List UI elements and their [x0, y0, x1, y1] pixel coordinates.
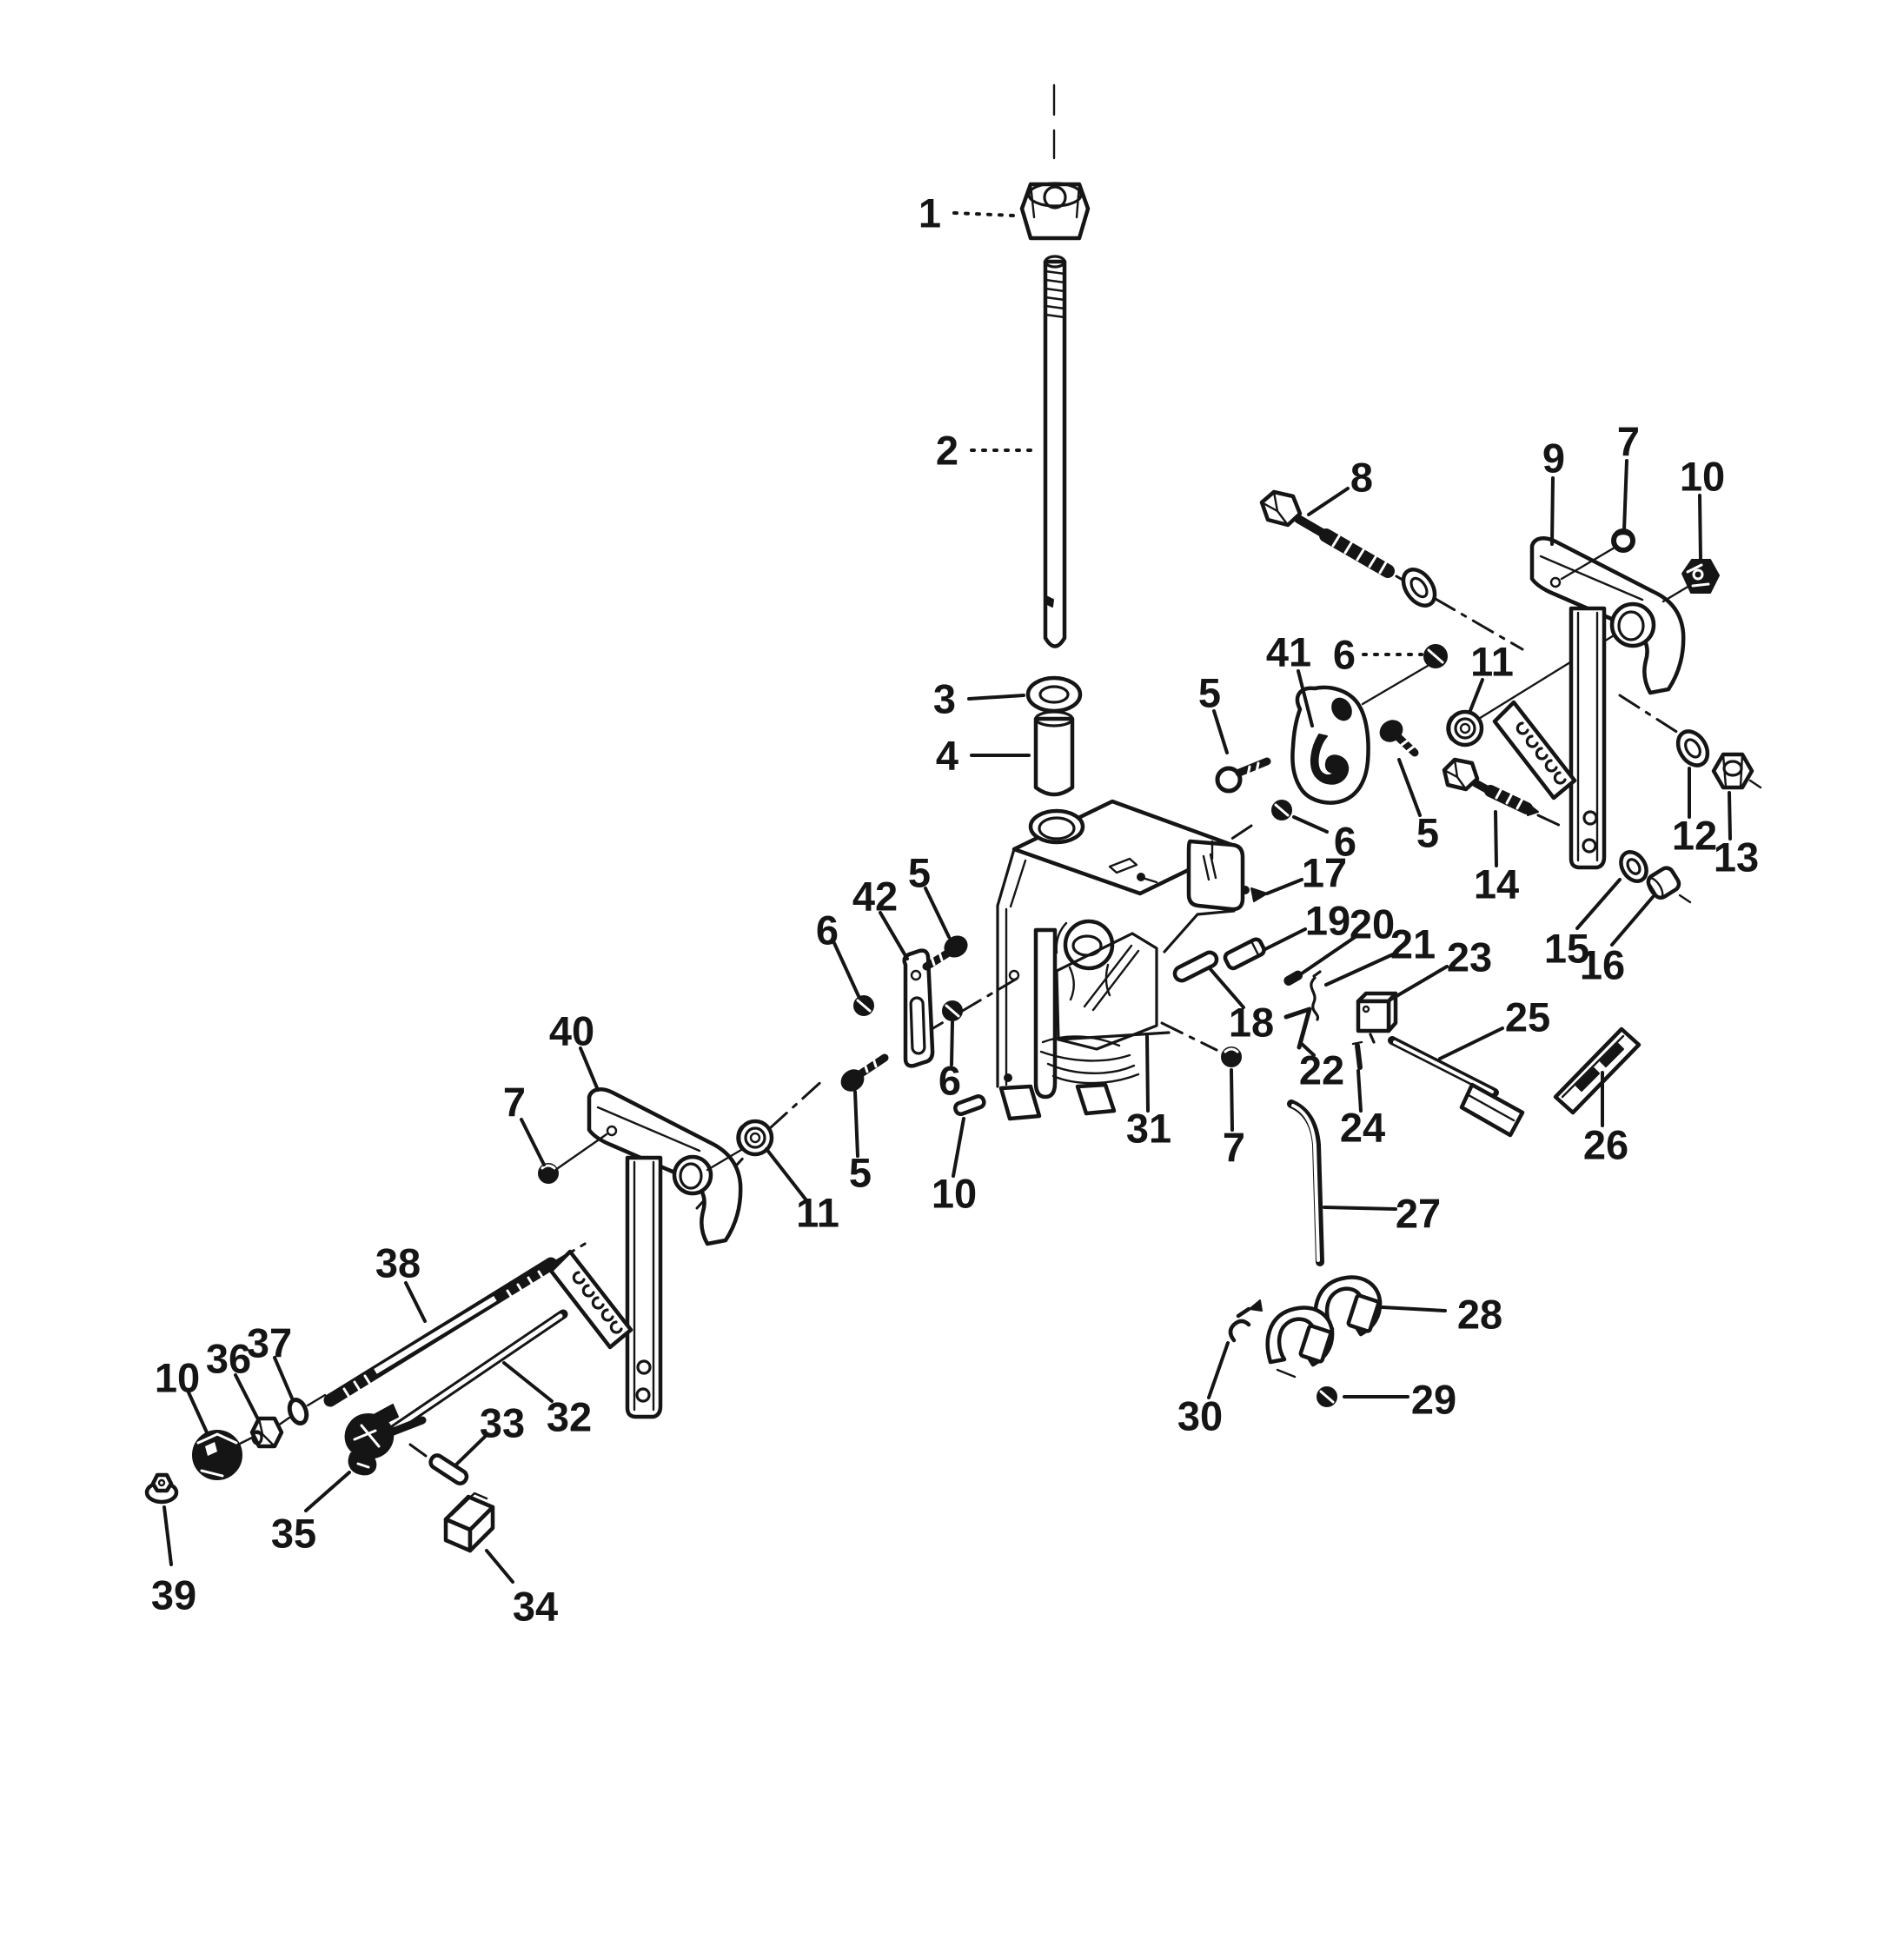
callout-label-1-0: 1 [919, 190, 941, 236]
callout-leader-28-33 [1383, 1307, 1445, 1311]
part-block-23 [1358, 993, 1396, 1042]
callout-leader-7-37 [521, 1120, 544, 1165]
part-nut-7a [1614, 531, 1633, 550]
part-link-19 [1224, 938, 1266, 970]
callout-label-13-13: 13 [1714, 834, 1759, 880]
part-oring-37 [287, 1398, 309, 1425]
drawing-stroke [1292, 688, 1368, 803]
callout-leader-1-0 [954, 213, 1013, 216]
callout-leader-21-22 [1326, 954, 1393, 985]
callout-label-31-29: 31 [1126, 1106, 1171, 1152]
drawing-stroke [1277, 1370, 1295, 1377]
callout-leader-15-17 [1577, 880, 1620, 928]
drawing-stroke [308, 1395, 325, 1405]
part-pin-22 [1286, 1009, 1310, 1047]
callout-leader-16-18 [1612, 897, 1653, 945]
part-washer-12 [1672, 726, 1714, 771]
drawing-stroke [153, 1475, 171, 1491]
callout-label-28-33: 28 [1457, 1292, 1502, 1338]
callout-leader-9-8 [1552, 478, 1553, 544]
drawing-stroke [1172, 950, 1219, 983]
part-clamp-screw-38 [330, 1264, 551, 1403]
callout-leader-19-20 [1265, 929, 1305, 949]
callout-label-21-22: 21 [1390, 921, 1436, 967]
drawing-stroke [923, 979, 1017, 1034]
callout-leader-11-11 [1469, 680, 1482, 713]
drawing-stroke [1714, 754, 1752, 787]
drawing-stroke [1357, 1046, 1360, 1067]
callout-label-2-1: 2 [936, 428, 958, 474]
part-anode-plate-26 [1555, 1029, 1639, 1113]
exploded-parts-diagram: 1234541679108111213145615161719202123251… [0, 0, 1877, 1960]
callout-label-20-21: 20 [1350, 901, 1395, 947]
drawing-stroke [1230, 826, 1251, 840]
callout-label-7-37: 7 [503, 1080, 526, 1126]
callout-leader-14-14 [1496, 812, 1496, 866]
drawing-stroke [1250, 1300, 1262, 1311]
part-nut-6d [1272, 801, 1291, 820]
drawing-stroke [558, 1134, 607, 1168]
part-clamp-bracket-28 [1268, 1278, 1380, 1377]
part-pivot-bolt-2 [1045, 256, 1065, 647]
callout-label-18-25: 18 [1229, 1000, 1274, 1046]
callout-label-42-39: 42 [852, 874, 898, 920]
part-bolt-5a [1217, 761, 1267, 791]
callout-leader-31-29 [1147, 1036, 1148, 1111]
drawing-stroke [1528, 805, 1538, 815]
callout-label-22-26: 22 [1299, 1047, 1344, 1093]
callout-leader-7-30 [1231, 1070, 1232, 1130]
part-bolt-14 [1444, 760, 1538, 815]
part-slide-block-34 [446, 1493, 493, 1551]
part-nut-7b [539, 1164, 558, 1183]
drawing-stroke [1680, 895, 1690, 902]
part-bolt-5c [838, 1058, 885, 1094]
drawing-stroke [377, 1302, 497, 1375]
drawing-stroke [770, 1078, 826, 1128]
drawing-stroke [1646, 866, 1681, 900]
part-clamp-bracket-40 [551, 1089, 746, 1417]
callout-label-5-4: 5 [1198, 670, 1221, 716]
callout-label-37-45: 37 [247, 1320, 292, 1366]
part-nut-13 [1714, 754, 1761, 787]
drawing-stroke [1045, 262, 1065, 647]
drawing-stroke [1672, 726, 1714, 771]
callout-label-30-34: 30 [1177, 1393, 1223, 1439]
part-nut-6a [1424, 645, 1447, 668]
part-bolt-5d [1376, 717, 1415, 753]
drawing-stroke [1353, 1042, 1362, 1044]
part-locknut-1 [1022, 183, 1088, 238]
callout-leader-39-51 [164, 1507, 171, 1565]
callout-label-10-9: 10 [1680, 454, 1725, 500]
callout-label-26-28: 26 [1583, 1122, 1628, 1168]
callout-leader-30-34 [1209, 1343, 1228, 1398]
drawing-stroke [395, 1316, 560, 1428]
drawing-stroke [1005, 1074, 1011, 1081]
part-spacer-4 [1036, 712, 1072, 794]
drawing-stroke [1242, 887, 1249, 894]
callout-label-5-43: 5 [849, 1150, 872, 1196]
part-clamp-bracket-9 [1495, 538, 1689, 867]
part-flange-nut-39 [147, 1475, 176, 1502]
callout-leader-3-2 [969, 695, 1024, 699]
callout-leader-34-52 [487, 1551, 513, 1582]
drawing-stroke [1230, 1309, 1249, 1340]
callout-label-39-51: 39 [151, 1572, 196, 1618]
callout-label-9-8: 9 [1542, 435, 1565, 482]
mount-foot [1001, 1086, 1039, 1119]
drawing-stroke [375, 1299, 495, 1372]
drawing-stroke [193, 1431, 242, 1479]
drawing-stroke [1011, 860, 1025, 907]
drawing-stroke [1028, 678, 1080, 711]
drawing-stroke [1644, 866, 1681, 901]
callout-label-19-20: 19 [1305, 898, 1350, 944]
drawing-stroke [1397, 564, 1442, 612]
drawing-stroke [1358, 1001, 1389, 1031]
callout-leader-10-31 [953, 1119, 964, 1176]
callout-leader-42-39 [880, 913, 907, 959]
callout-label-6-6: 6 [1333, 632, 1356, 678]
callout-leader-17-19 [1267, 880, 1302, 894]
callout-label-27-32: 27 [1396, 1191, 1441, 1237]
drawing-stroke [1251, 888, 1267, 901]
callout-leader-23-23 [1392, 967, 1447, 999]
drawing-stroke [1363, 666, 1428, 704]
callout-leader-10-9 [1700, 495, 1701, 560]
part-washer-8 [1397, 564, 1442, 612]
drawing-stroke [410, 1445, 426, 1456]
callout-label-11-38: 11 [796, 1190, 839, 1236]
callout-leader-7-7 [1624, 461, 1627, 530]
part-cap-nut-10c [193, 1431, 242, 1479]
part-screw-17 [1242, 887, 1267, 901]
callout-label-5-40: 5 [908, 850, 931, 896]
part-pin-33 [410, 1445, 469, 1485]
transom-plate [627, 1158, 660, 1417]
drawing-stroke [278, 1418, 289, 1425]
callout-label-11-11: 11 [1470, 639, 1514, 685]
callout-leader-25-24 [1440, 1028, 1502, 1059]
callout-label-23-23: 23 [1447, 934, 1492, 980]
callout-label-16-18: 16 [1580, 942, 1625, 988]
callout-leader-36-46 [235, 1375, 258, 1419]
drawing-stroke [1370, 1034, 1374, 1042]
callout-label-5-15: 5 [1416, 810, 1439, 856]
part-washer-3 [1028, 678, 1080, 711]
mount-foot [1078, 1085, 1114, 1113]
drawing-stroke [1036, 719, 1072, 794]
callout-label-34-52: 34 [513, 1584, 558, 1630]
callout-leader-6-16 [1294, 817, 1327, 832]
diagram-page: 1234541679108111213145615161719202123251… [0, 0, 1877, 1960]
drawing-stroke [1239, 761, 1267, 773]
callout-label-38-44: 38 [375, 1240, 421, 1286]
part-pin-24 [1353, 1042, 1362, 1067]
callout-label-12-12: 12 [1672, 813, 1717, 859]
callout-leader-40-36 [580, 1048, 598, 1090]
callout-label-25-24: 25 [1505, 994, 1550, 1040]
drawing-stroke [1395, 1042, 1492, 1092]
part-reverse-lock-rod-27 [1291, 1104, 1320, 1262]
transom-plate [1571, 608, 1604, 867]
callout-label-6-41: 6 [816, 907, 839, 953]
part-nut-29 [1317, 1387, 1336, 1406]
drawing-stroke [349, 1452, 376, 1474]
drawing-stroke [1300, 1325, 1331, 1362]
callout-label-7-30: 7 [1223, 1125, 1245, 1171]
callout-leader-27-32 [1324, 1207, 1396, 1209]
drawing-stroke [1348, 1295, 1379, 1332]
callout-label-6-42: 6 [938, 1058, 961, 1104]
front-channel-bar [1036, 930, 1055, 1097]
callout-label-41-5: 41 [1266, 629, 1311, 675]
callout-label-7-7: 7 [1617, 419, 1640, 465]
callout-leader-35-50 [306, 1472, 349, 1511]
drawing-stroke [1538, 815, 1564, 827]
part-nut-6b [943, 1001, 962, 1020]
callout-label-10-31: 10 [932, 1171, 977, 1217]
callout-leader-5-43 [855, 1092, 858, 1156]
callout-label-10-47: 10 [155, 1355, 200, 1401]
pivot-hole [1010, 971, 1018, 980]
callout-label-33-48: 33 [480, 1400, 525, 1446]
callout-leader-13-13 [1729, 793, 1730, 839]
drawing-stroke [1164, 911, 1234, 952]
drawing-stroke [1162, 1023, 1217, 1050]
callout-label-14-14: 14 [1474, 861, 1519, 907]
callout-label-35-50: 35 [271, 1511, 316, 1557]
callout-leader-5-15 [1399, 760, 1420, 815]
drawing-stroke [1224, 938, 1266, 970]
callout-label-8-10: 8 [1350, 455, 1373, 501]
callout-label-36-46: 36 [206, 1336, 251, 1382]
callout-label-32-49: 32 [547, 1394, 592, 1440]
callout-label-40-36: 40 [549, 1008, 594, 1054]
part-nut-6c [854, 996, 873, 1015]
callout-leader-8-10 [1309, 488, 1348, 515]
callout-leader-32-49 [504, 1363, 552, 1401]
drawing-stroke [1620, 695, 1688, 739]
drawing-stroke [998, 849, 1014, 906]
callout-label-4-3: 4 [936, 733, 958, 779]
part-nut-7c [1222, 1047, 1241, 1066]
callout-leader-5-4 [1214, 711, 1227, 753]
callout-label-3-2: 3 [933, 676, 956, 722]
part-pin-18 [1172, 950, 1219, 983]
part-clip-30 [1230, 1300, 1262, 1340]
part-clip-21 [1311, 972, 1320, 1020]
callout-label-17-19: 17 [1302, 850, 1347, 896]
part-tilt-pin-rod-32 [393, 1314, 563, 1430]
part-nut-36 [252, 1419, 282, 1446]
drawing-stroke [1663, 586, 1689, 601]
drawing-stroke [1137, 874, 1144, 880]
callout-leader-38-44 [406, 1283, 425, 1321]
callout-label-29-35: 29 [1411, 1377, 1456, 1423]
callout-label-24-27: 24 [1340, 1105, 1385, 1151]
part-bracket-41 [1292, 688, 1368, 803]
part-tilt-rod-25 [1392, 1040, 1522, 1135]
part-grommet-11a [1449, 712, 1482, 745]
